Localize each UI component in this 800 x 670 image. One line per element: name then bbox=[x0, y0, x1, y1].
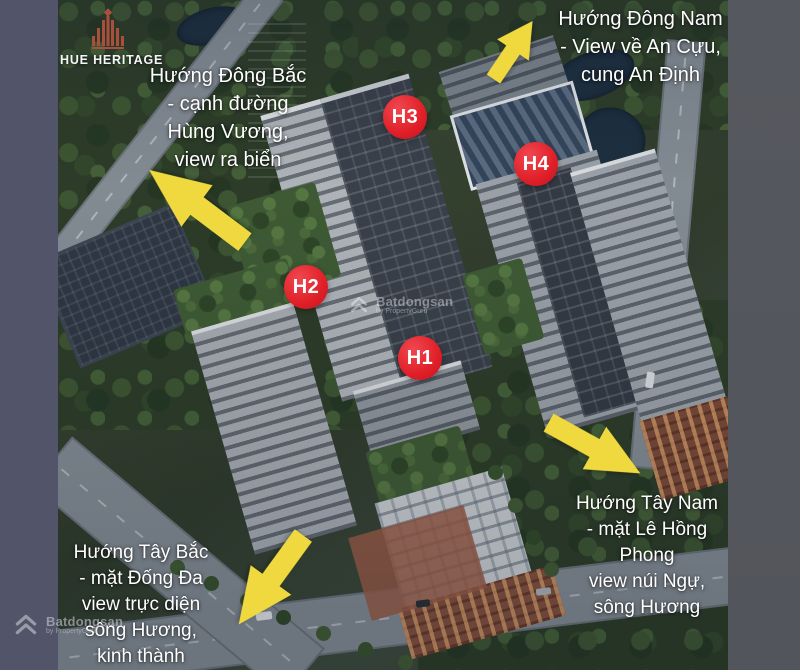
watermark-center: Batdongsan by PropertyGuru bbox=[348, 294, 453, 316]
batdongsan-logo-icon bbox=[12, 611, 40, 639]
batdongsan-logo-icon bbox=[348, 294, 370, 316]
direction-arrow-tay-nam-icon bbox=[535, 398, 654, 498]
brochure-image: HUE HERITAGE Hướng Đông Bắc - cạnh đường… bbox=[0, 0, 800, 670]
watermark-brand: Batdongsan bbox=[46, 615, 123, 629]
label-huong-tay-nam: Hướng Tây Nam - mặt Lê Hồng Phong view n… bbox=[552, 491, 742, 621]
label-line: cung An Định bbox=[548, 61, 733, 89]
watermark-corner: Batdongsan by PropertyGuru bbox=[12, 611, 123, 639]
label-line: Phong bbox=[552, 543, 742, 569]
direction-arrow-dong-nam-icon bbox=[475, 9, 551, 92]
label-line: sông Hương bbox=[552, 595, 742, 621]
label-line: view núi Ngự, bbox=[552, 569, 742, 595]
watermark-byline: by PropertyGuru bbox=[46, 628, 123, 635]
label-line: - mặt Lê Hồng bbox=[552, 517, 742, 543]
label-line: - mặt Đống Đa bbox=[52, 566, 230, 592]
annotations-layer: HUE HERITAGE Hướng Đông Bắc - cạnh đường… bbox=[0, 0, 800, 670]
tower-badge-h2: H2 bbox=[284, 265, 328, 309]
label-line: Hướng Đông Bắc bbox=[128, 62, 328, 90]
label-line: Hướng Tây Bắc bbox=[52, 540, 230, 566]
watermark-byline: by PropertyGuru bbox=[376, 308, 453, 315]
project-logo: HUE HERITAGE bbox=[60, 8, 156, 67]
label-line: kinh thành bbox=[52, 644, 230, 670]
watermark-brand: Batdongsan bbox=[376, 295, 453, 309]
label-huong-tay-bac: Hướng Tây Bắc - mặt Đống Đa view trực di… bbox=[52, 540, 230, 670]
label-line: Hướng Đông Nam bbox=[548, 5, 733, 33]
tower-badge-h4: H4 bbox=[514, 142, 558, 186]
tower-badge-h1: H1 bbox=[398, 336, 442, 380]
label-line: - cạnh đường bbox=[128, 90, 328, 118]
label-line: - View về An Cựu, bbox=[548, 33, 733, 61]
direction-arrow-tay-bac-icon bbox=[215, 518, 327, 641]
label-line: Hùng Vương, bbox=[128, 118, 328, 146]
label-huong-dong-nam: Hướng Đông Nam - View về An Cựu, cung An… bbox=[548, 5, 733, 89]
hue-heritage-emblem-icon bbox=[90, 8, 126, 50]
tower-badge-h3: H3 bbox=[383, 95, 427, 139]
label-line: Hướng Tây Nam bbox=[552, 491, 742, 517]
